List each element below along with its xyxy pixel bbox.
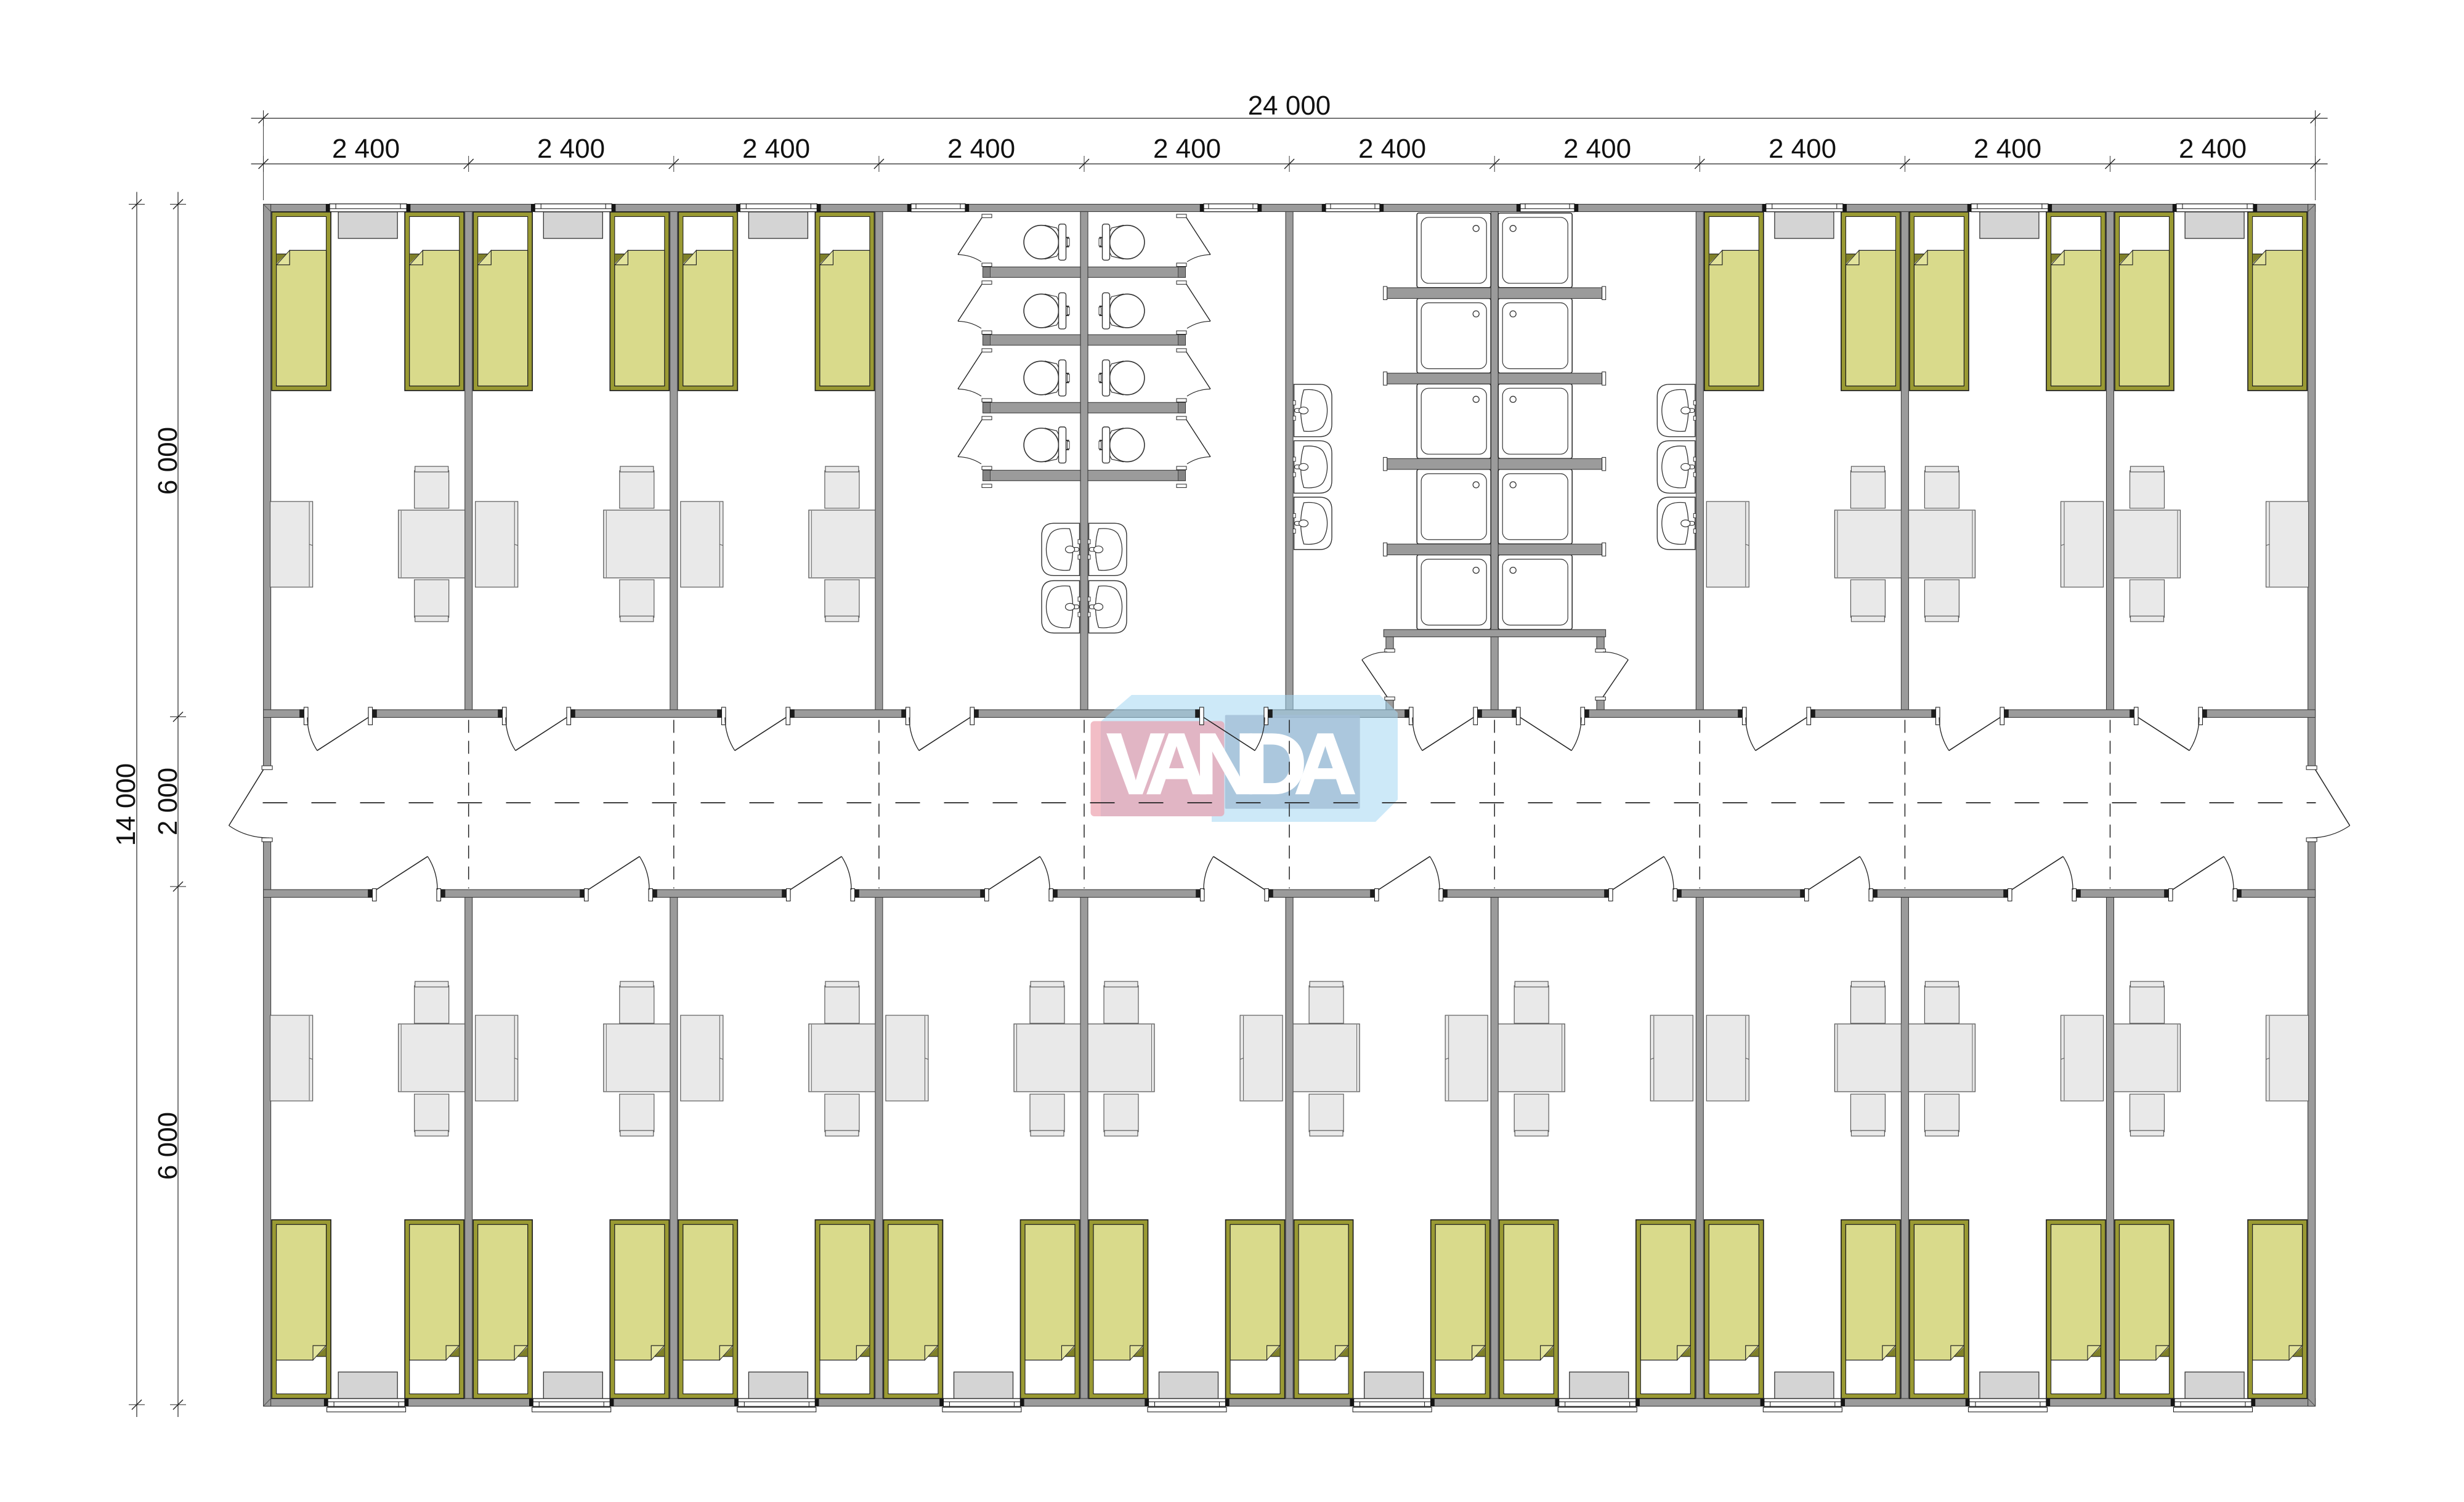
- svg-text:2 400: 2 400: [1974, 134, 2041, 164]
- svg-text:6 000: 6 000: [153, 427, 183, 495]
- svg-text:2 400: 2 400: [2179, 134, 2247, 164]
- svg-text:2 400: 2 400: [947, 134, 1015, 164]
- svg-text:2 400: 2 400: [1358, 134, 1426, 164]
- svg-text:2 400: 2 400: [1769, 134, 1836, 164]
- svg-text:2 400: 2 400: [332, 134, 400, 164]
- svg-text:2 400: 2 400: [1153, 134, 1221, 164]
- svg-text:6 000: 6 000: [153, 1112, 183, 1180]
- svg-text:14 000: 14 000: [111, 763, 141, 846]
- svg-text:2 400: 2 400: [1563, 134, 1631, 164]
- svg-text:VANDA: VANDA: [1107, 715, 1360, 812]
- svg-text:2 400: 2 400: [537, 134, 605, 164]
- svg-text:24 000: 24 000: [1248, 91, 1331, 121]
- svg-text:2 000: 2 000: [153, 768, 183, 835]
- svg-text:2 400: 2 400: [742, 134, 810, 164]
